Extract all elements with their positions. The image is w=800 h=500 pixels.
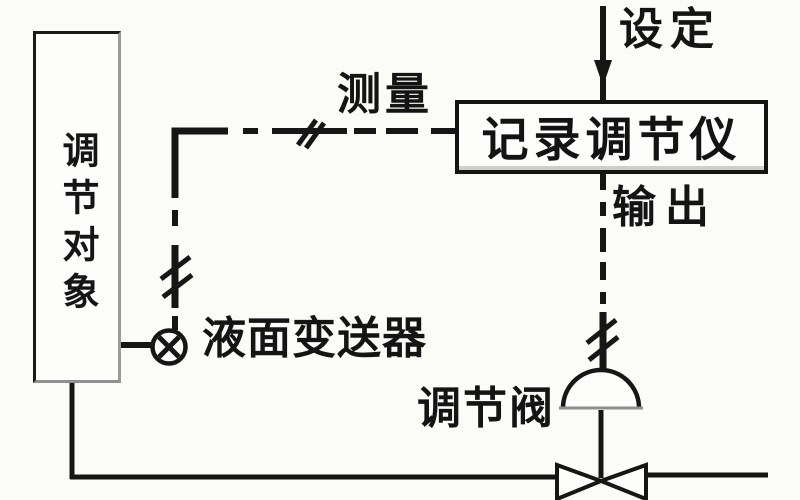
valve-label: 调节阀 xyxy=(417,387,555,431)
diagram-stage: 调节对象 记录调节仪 测量 设定 输出 液面变送器 调节阀 xyxy=(0,0,800,500)
controlled-object-label: 调节对象 xyxy=(50,131,104,319)
setpoint-line xyxy=(594,6,612,100)
controller-label: 记录调节仪 xyxy=(482,101,742,170)
measurement-signal-line xyxy=(175,131,455,330)
controller-box: 记录调节仪 xyxy=(455,100,768,174)
setpoint-label: 设定 xyxy=(619,8,721,52)
output-label: 输出 xyxy=(612,186,718,230)
valve-actuator-dome-icon xyxy=(559,370,643,478)
controlled-object-box: 调节对象 xyxy=(33,31,121,383)
transmitter-circle-icon xyxy=(153,331,186,364)
measurement-label: 测量 xyxy=(337,73,433,117)
transmitter-label: 液面变送器 xyxy=(202,317,427,361)
setpoint-arrow-icon xyxy=(594,60,612,86)
measurement-slash-ticks-icon xyxy=(161,120,324,297)
